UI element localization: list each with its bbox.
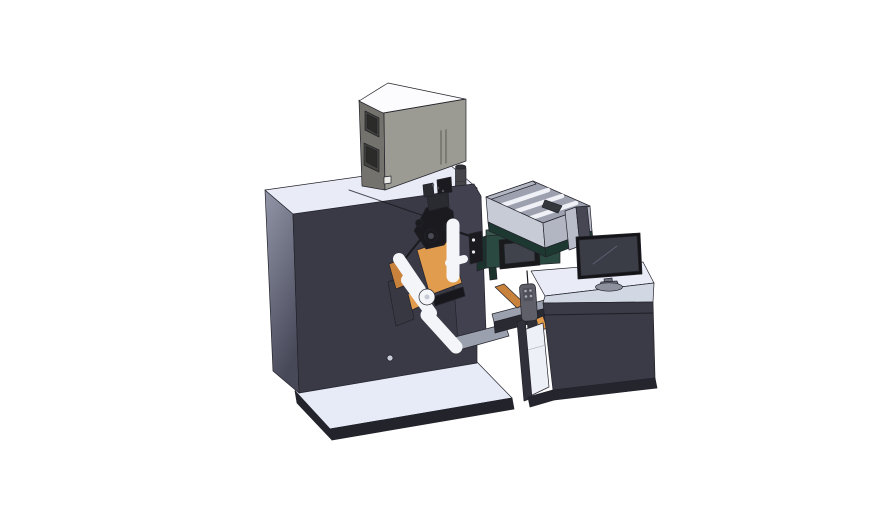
cad-render [0,0,888,522]
screw-dot-2 [437,187,439,189]
screw-dot-1 [432,184,434,186]
operator-desk [517,262,657,407]
pendant-button-1[interactable] [524,290,527,293]
monitor-screen[interactable] [579,236,639,276]
pendant-button-4[interactable] [530,295,533,298]
hub-left [416,220,423,227]
print-unit-foot [489,267,497,280]
pendant-cable [527,271,528,285]
head-block-2 [437,177,452,194]
roller-end-dot [425,295,430,300]
bracket-screw-1 [472,238,475,241]
screw-dot-3 [442,190,444,192]
cabinet-hole [387,355,393,361]
roller-stub [449,259,464,263]
hub-main-inner [428,233,434,239]
print-unit-bracket [469,231,483,264]
box-label-plate [384,176,391,184]
pendant-button-3[interactable] [525,295,528,298]
pendant-button-2[interactable] [529,289,532,292]
bracket-screw-2 [472,250,475,253]
monitor-base [596,283,623,291]
box-filter-cap [456,165,466,169]
pendant-keypad [523,288,534,302]
box-side-face [359,100,385,190]
cad-viewport [0,0,888,522]
